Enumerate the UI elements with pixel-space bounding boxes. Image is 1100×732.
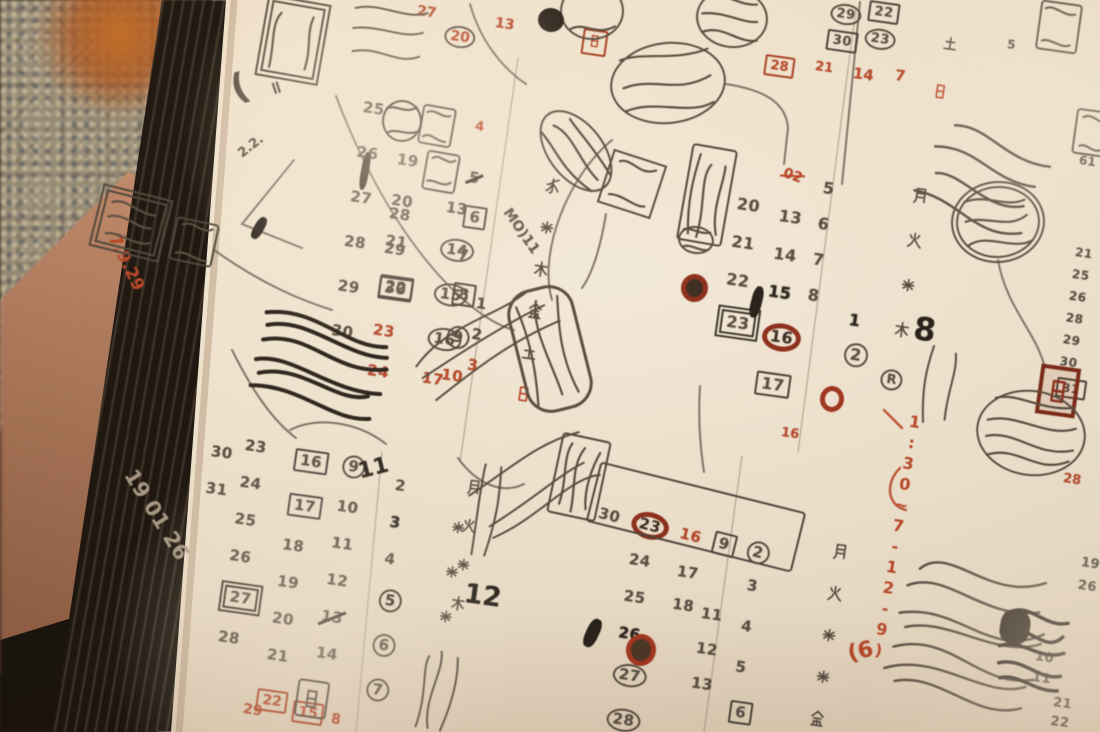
date-column: 282930 — [377, 206, 423, 303]
date-number: 6 — [462, 205, 488, 231]
handwritten-mark: 8 — [330, 712, 342, 727]
date-number: 1 — [848, 312, 862, 329]
date-number: 27 — [349, 189, 373, 207]
annotations: 2526272829301920212223241314151617567891… — [0, 0, 1100, 732]
handwritten-mark: 14 — [852, 66, 875, 84]
red-vertical-char: ~ — [893, 493, 910, 516]
date-number: 3 — [746, 578, 759, 594]
date-number: 29 — [829, 2, 863, 27]
note-scribble — [421, 149, 461, 194]
weekday-scrawl-glyph — [538, 218, 556, 238]
date-number: 28 — [605, 706, 642, 732]
date-number: 7 — [365, 677, 391, 703]
date-number: 8 — [451, 282, 477, 308]
date-number: 12 — [695, 641, 719, 659]
date-number: 25 — [1071, 268, 1090, 282]
date-number: 20 — [736, 196, 761, 215]
handwritten-mark: MO)11 — [501, 206, 542, 256]
date-number: 22 — [725, 271, 750, 290]
handwritten-mark: R — [879, 368, 904, 392]
note-scribble — [1035, 0, 1084, 55]
date-number: 29 — [1062, 333, 1081, 347]
handwritten-mark: 20 — [443, 24, 477, 50]
photo-frame: 2526272829301920212223241314151617567891… — [0, 0, 1100, 732]
date-column: 234567 — [365, 478, 419, 703]
note-scribble — [94, 189, 167, 256]
red-vertical-char: 3 — [900, 452, 917, 475]
date-number: 26 — [1077, 579, 1098, 595]
date-column: 3456 — [728, 578, 771, 726]
calendar-glyph-mark — [931, 82, 949, 104]
weekday-scrawl-glyph — [443, 563, 460, 582]
date-number: 30 — [210, 444, 234, 462]
date-number: 13 — [320, 608, 344, 626]
date-number: 21 — [1074, 246, 1093, 260]
weekday-kanji-glyph — [893, 320, 911, 340]
date-number: 26 — [228, 548, 252, 566]
weekday-kanji-glyph — [808, 708, 826, 728]
date-number: 4 — [384, 551, 397, 567]
date-number: 22 — [1050, 715, 1071, 731]
date-number: 28 — [388, 206, 412, 224]
date-number: 17 — [754, 370, 792, 399]
weekday-column — [802, 542, 850, 732]
note-scribble — [417, 103, 457, 148]
date-number: 17 — [676, 564, 700, 582]
date-number: 19 — [276, 574, 300, 592]
handwriting-scrawl — [898, 104, 1066, 261]
date-number: 30 — [377, 275, 414, 302]
handwritten-mark: 22 — [255, 688, 289, 714]
handwriting-scrawl — [985, 598, 1078, 706]
weekday-scrawl-glyph — [820, 625, 838, 645]
ink-blob — [818, 384, 845, 413]
date-number: 5 — [735, 659, 748, 675]
date-number: 24 — [628, 552, 652, 570]
note-scribble — [382, 100, 422, 142]
date-number: 18 — [671, 597, 695, 615]
date-number: 27 — [611, 662, 648, 689]
handwritten-mark: 2.2. — [236, 133, 266, 160]
date-number: 7 — [457, 247, 470, 263]
date-number: 20 — [271, 610, 295, 628]
date-number: 21 — [730, 234, 755, 253]
red-vertical-char: 7 — [890, 514, 907, 537]
note-scribble — [606, 36, 730, 130]
date-number: 25 — [623, 589, 647, 607]
handwriting-scrawl — [342, 0, 438, 67]
handwriting-scrawl — [403, 638, 469, 732]
weekday-kanji-glyph — [826, 584, 844, 604]
handwritten-mark: ( — [226, 68, 254, 107]
date-column: 2930 — [825, 2, 862, 54]
note-scribble — [168, 216, 220, 268]
note-scribble — [560, 0, 624, 40]
handwritten-mark: = — [265, 78, 287, 98]
date-number: 14 — [772, 246, 797, 265]
date-column: 3031 — [205, 444, 234, 499]
date-number: 21 — [266, 647, 290, 665]
date-number: 4 — [740, 619, 753, 635]
date-number: 29 — [337, 278, 361, 296]
weekday-scrawl-glyph — [437, 607, 454, 626]
weekday-kanji-glyph — [543, 176, 561, 196]
handwritten-mark: 16 — [780, 426, 800, 441]
handwritten-mark: 28 — [763, 54, 796, 79]
date-number: 27 — [222, 585, 259, 612]
date-number: 19 — [396, 152, 420, 170]
handwritten-mark: 11 — [356, 455, 391, 484]
date-number: 10 — [336, 499, 360, 517]
note-scribble — [260, 0, 326, 80]
date-number: 24 — [239, 475, 263, 493]
date-number: 11 — [331, 535, 355, 553]
handwritten-mark: 13 — [494, 16, 515, 33]
date-number: 26 — [1068, 290, 1087, 304]
handwritten-mark: 02 — [781, 166, 804, 186]
date-number: 16 — [293, 448, 330, 475]
date-number: 5 — [822, 180, 836, 197]
ink-blob — [679, 272, 710, 303]
date-number: 3 — [389, 515, 402, 531]
red-vertical-char: : — [903, 431, 920, 454]
date-number: 8 — [807, 287, 821, 304]
weekday-scrawl-glyph — [899, 275, 917, 295]
date-column: 2223 — [863, 0, 900, 52]
date-number: 5 — [377, 588, 403, 614]
date-number: 25 — [234, 511, 258, 529]
handwritten-mark: 19 01 26 — [120, 466, 192, 564]
handwritten-mark: 4 — [474, 120, 485, 134]
date-number: 28 — [343, 234, 367, 252]
weekday-kanji-glyph — [905, 231, 923, 251]
date-number: 6 — [817, 216, 831, 233]
handwritten-mark: 7 — [894, 68, 906, 84]
date-number: 15 — [767, 283, 792, 302]
calendar-glyph-mark — [941, 34, 959, 56]
handwritten-mark: 21 — [814, 60, 834, 75]
note-scribble — [971, 383, 1092, 483]
date-number: 18 — [281, 537, 305, 555]
date-number: 29 — [383, 241, 407, 259]
weekday-scrawl-glyph — [450, 518, 467, 537]
date-number: 7 — [812, 251, 826, 268]
date-number: 11 — [700, 606, 724, 624]
date-number: 23 — [244, 438, 268, 456]
date-number: 13 — [778, 208, 803, 227]
ink-blob — [249, 215, 270, 241]
date-number: 6 — [371, 632, 397, 658]
date-number: 31 — [205, 481, 229, 499]
date-number: 12 — [325, 572, 349, 590]
note-scribble — [1071, 108, 1100, 159]
date-number: 13 — [690, 675, 714, 693]
date-column: 1718 — [671, 564, 699, 615]
date-number: 14 — [315, 645, 339, 663]
handwriting-layer: 2526272829301920212223241314151617567891… — [0, 0, 1100, 732]
date-column: 111213 — [690, 606, 723, 693]
date-number: 2 — [842, 342, 869, 369]
ink-blob — [580, 617, 604, 650]
date-column: 12 — [842, 312, 873, 369]
date-number: 19 — [1080, 556, 1100, 572]
date-number: 5 — [468, 170, 481, 186]
date-number: 6 — [728, 700, 754, 726]
note-scribble — [294, 678, 331, 720]
handwritten-mark: 5 — [1006, 38, 1016, 51]
weekday-kanji-glyph — [831, 542, 849, 562]
handwriting-scrawl — [916, 338, 964, 430]
date-number: 17 — [287, 493, 324, 520]
date-number: 28 — [1065, 311, 1084, 325]
red-vertical-char: 0 — [897, 473, 914, 496]
date-number: 22 — [867, 0, 901, 25]
date-number: 28 — [217, 629, 241, 647]
date-number: 30 — [825, 29, 859, 54]
weekday-scrawl-glyph — [814, 667, 832, 687]
date-number: 23 — [863, 27, 897, 52]
date-column: 1926 — [1077, 556, 1100, 594]
date-number: 16 — [760, 321, 803, 354]
date-number: 2 — [394, 478, 407, 494]
handwritten-mark: 12 — [462, 580, 503, 612]
